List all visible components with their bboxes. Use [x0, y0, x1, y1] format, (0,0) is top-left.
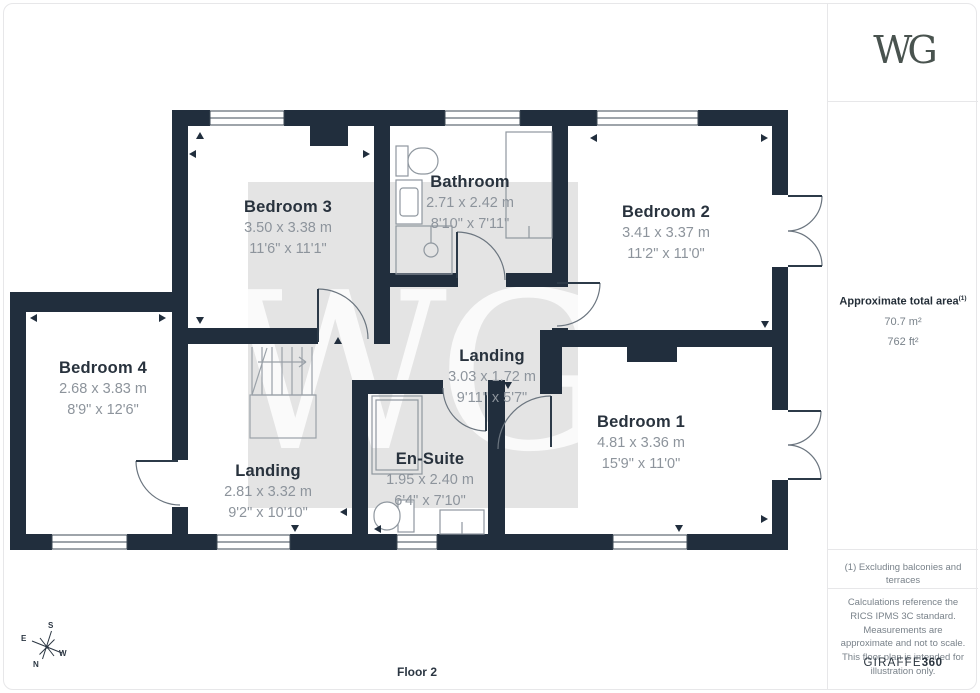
brand-giraffe: GIRAFFE	[864, 657, 922, 669]
room-dim-metric: 4.81 x 3.36 m	[597, 433, 685, 454]
room-name: Landing	[224, 461, 312, 482]
total-area-title: Approximate total area(1)	[828, 295, 978, 308]
compass-north: N	[33, 660, 39, 669]
floorplan-page: WG	[0, 0, 980, 693]
room-name: Bedroom 1	[597, 412, 685, 433]
compass-east: E	[21, 634, 26, 643]
room-dim-imperial: 9'2" x 10'10"	[224, 503, 312, 524]
room-dim-imperial: 15'9" x 11'0"	[597, 454, 685, 475]
area-footnote: (1) Excluding balconies and terraces	[836, 561, 970, 588]
room-dim-metric: 1.95 x 2.40 m	[386, 470, 474, 491]
info-sidebar: WG Approximate total area(1) 70.7 m² 762…	[827, 4, 978, 689]
brand-logo: WG	[828, 30, 978, 70]
room-dim-imperial: 8'10" x 7'11"	[426, 214, 514, 235]
room-label-landing-lower: Landing 2.81 x 3.32 m 9'2" x 10'10"	[224, 461, 312, 523]
room-label-bedroom-2: Bedroom 2 3.41 x 3.37 m 11'2" x 11'0"	[622, 202, 710, 264]
room-dim-imperial: 11'6" x 11'1"	[244, 239, 332, 260]
compass-west: W	[59, 649, 67, 658]
footnote-marker: (1)	[959, 295, 967, 302]
room-label-en-suite: En-Suite 1.95 x 2.40 m 6'4" x 7'10"	[386, 449, 474, 511]
total-area-m2: 70.7 m²	[828, 316, 978, 328]
room-dim-metric: 3.41 x 3.37 m	[622, 223, 710, 244]
room-label-landing-upper: Landing 3.03 x 1.72 m 9'11" x 5'7"	[448, 346, 536, 408]
total-area-block: Approximate total area(1) 70.7 m² 762 ft…	[828, 295, 978, 348]
room-label-bathroom: Bathroom 2.71 x 2.42 m 8'10" x 7'11"	[426, 172, 514, 234]
room-dim-imperial: 9'11" x 5'7"	[448, 388, 536, 409]
room-dim-imperial: 8'9" x 12'6"	[59, 400, 147, 421]
room-dim-imperial: 11'2" x 11'0"	[622, 244, 710, 265]
room-dim-metric: 2.81 x 3.32 m	[224, 482, 312, 503]
room-dim-metric: 2.68 x 3.83 m	[59, 379, 147, 400]
total-area-ft2: 762 ft²	[828, 336, 978, 348]
room-name: Landing	[448, 346, 536, 367]
room-dim-imperial: 6'4" x 7'10"	[386, 491, 474, 512]
room-label-bedroom-1: Bedroom 1 4.81 x 3.36 m 15'9" x 11'0"	[597, 412, 685, 474]
compass-icon: S E W N	[18, 620, 76, 676]
room-name: Bedroom 3	[244, 197, 332, 218]
brand-360: 360	[922, 657, 943, 669]
divider	[828, 101, 978, 102]
floor-label: Floor 2	[352, 665, 482, 679]
room-name: Bedroom 2	[622, 202, 710, 223]
room-name: En-Suite	[386, 449, 474, 470]
giraffe360-brand: GIRAFFE360	[828, 657, 978, 669]
room-dim-metric: 2.71 x 2.42 m	[426, 193, 514, 214]
room-name: Bedroom 4	[59, 358, 147, 379]
toilet-icon	[396, 146, 408, 176]
room-dim-metric: 3.50 x 3.38 m	[244, 218, 332, 239]
room-dim-metric: 3.03 x 1.72 m	[448, 367, 536, 388]
compass-south: S	[48, 621, 53, 630]
room-label-bedroom-4: Bedroom 4 2.68 x 3.83 m 8'9" x 12'6"	[59, 358, 147, 420]
room-name: Bathroom	[426, 172, 514, 193]
divider	[828, 588, 978, 589]
room-label-bedroom-3: Bedroom 3 3.50 x 3.38 m 11'6" x 11'1"	[244, 197, 332, 259]
divider	[828, 549, 978, 550]
